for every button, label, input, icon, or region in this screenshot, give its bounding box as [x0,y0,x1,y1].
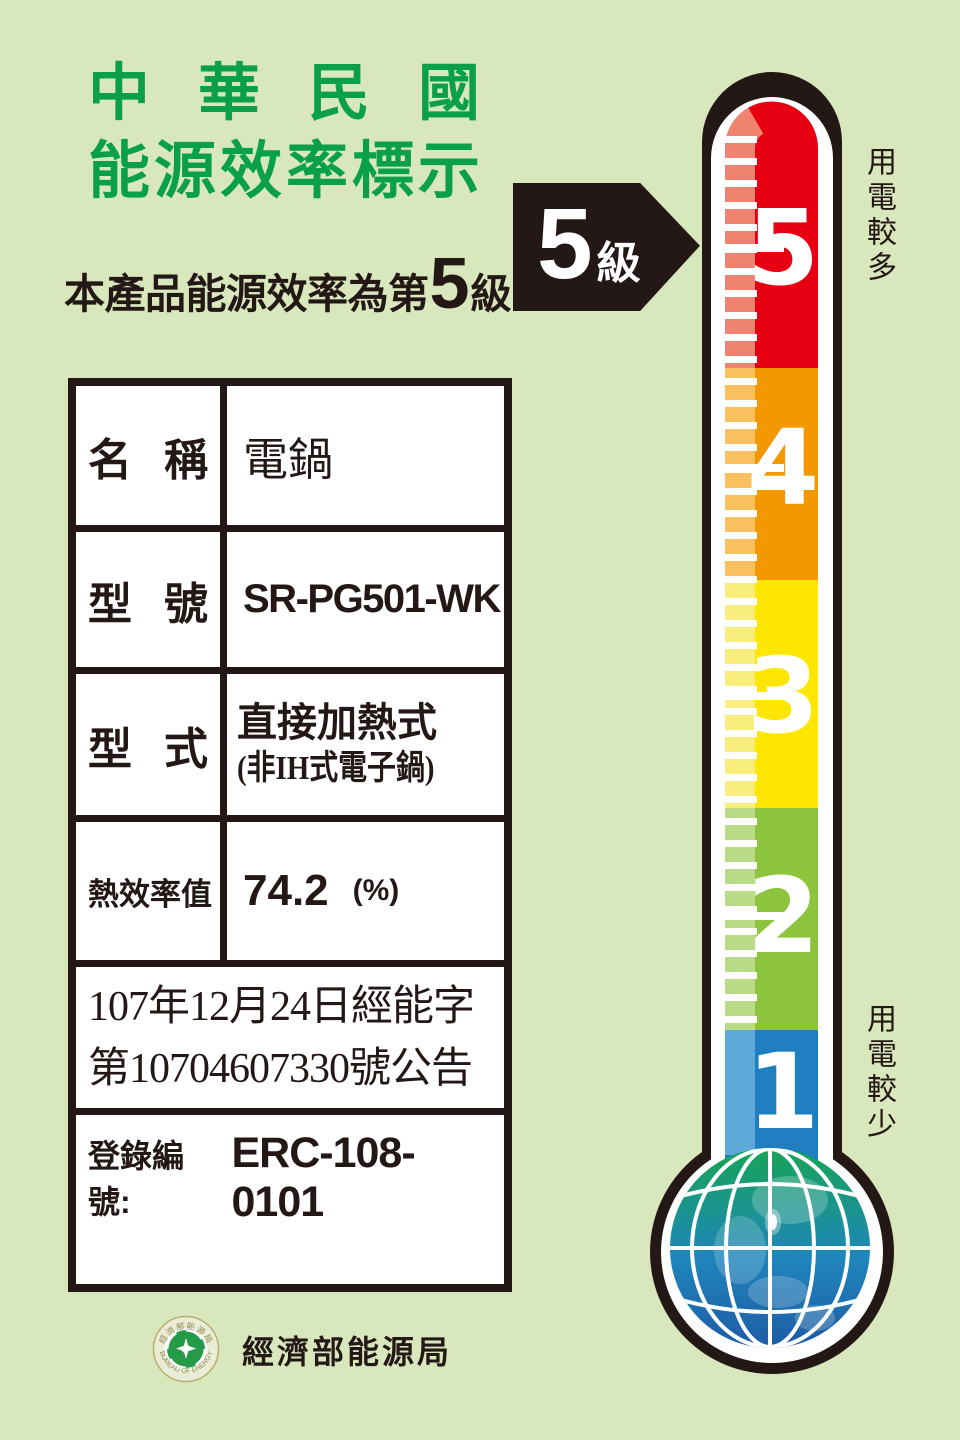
bureau-of-energy-seal: 經濟部能源局 BUREAU OF ENERGY [152,1315,220,1383]
label-title: 中華民國 能源效率標示 [88,58,480,208]
level-1-number: 1 [747,1031,819,1153]
registration-label: 登錄編號: [88,1131,226,1223]
type-label-cell: 型式 [76,674,227,815]
efficiency-value: 74.2 [243,866,329,916]
table-row-registration: 登錄編號: ERC-108-0101 [76,1115,504,1249]
badge-level-number: 5 [537,189,593,299]
level-5-number: 5 [747,187,819,309]
table-row-model: 型號 SR-PG501-WK [76,532,504,674]
table-row-efficiency: 熱效率值 74.2 (%) [76,822,504,967]
efficiency-value-cell: 74.2 (%) [227,822,504,960]
announcement-line2: 第10704607330號公告 [88,1038,504,1100]
type-value-line1: 直接加熱式 [237,699,437,747]
name-label-cell: 名稱 [76,386,227,525]
statement-prefix: 本產品能源效率為第 [64,260,429,320]
type-value: 直接加熱式 (非IH式電子鍋) [227,674,504,815]
registration-number: ERC-108-0101 [232,1129,505,1227]
uses-more-power-label: 用電較多 [861,146,895,286]
name-label: 名稱 [76,424,220,488]
table-row-type: 型式 直接加熱式 (非IH式電子鍋) [76,674,504,822]
spec-table: 名稱 電鍋 型號 SR-PG501-WK 型式 直接加熱式 (非IH式電子鍋) … [68,378,512,1292]
level-2-number: 2 [747,855,819,977]
title-line2: 能源效率標示 [88,136,480,208]
title-line1: 中華民國 [88,58,480,130]
type-value-line2: (非IH式電子鍋) [237,747,434,791]
statement-suffix: 級 [471,260,512,320]
model-value: SR-PG501-WK [227,532,504,667]
statement-level-number: 5 [430,252,470,317]
efficiency-statement: 本產品能源效率為第 5 級 [64,252,511,320]
energy-label: { "colors": { "background": "#d9e7bd", "… [0,0,960,1440]
table-row-announcement: 107年12月24日經能字 第10704607330號公告 [76,967,504,1115]
model-label: 型號 [76,568,220,632]
efficiency-label-cell: 熱效率值 [76,822,227,960]
announcement-line1: 107年12月24日經能字 [88,976,504,1038]
type-label: 型式 [76,713,220,777]
level-4-number: 4 [747,407,819,529]
efficiency-unit: (%) [353,874,400,908]
bureau-name: 經濟部能源局 [242,1327,452,1373]
globe-icon [670,1148,870,1348]
level-3-number: 3 [747,635,819,757]
efficiency-label: 熱效率值 [76,869,220,914]
model-label-cell: 型號 [76,532,227,667]
name-value: 電鍋 [227,386,504,525]
thermometer-scale: 5 4 3 2 1 [600,70,900,1400]
table-row-name: 名稱 電鍋 [76,386,504,532]
uses-less-power-label: 用電較少 [861,1003,895,1143]
